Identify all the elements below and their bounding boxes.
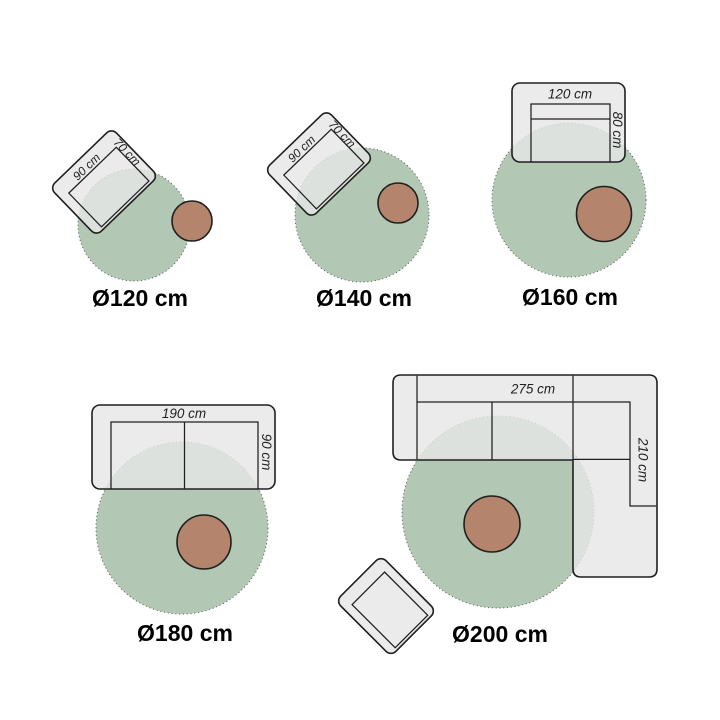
size-caption: Ø200 cm bbox=[452, 621, 548, 647]
side-table bbox=[577, 187, 632, 242]
size-caption: Ø120 cm bbox=[92, 285, 188, 311]
rug-size-guide: 90 cm 70 cm Ø120 cm 90 cm 70 cm Ø140 cm … bbox=[0, 0, 720, 720]
depth-label: 210 cm bbox=[636, 437, 651, 482]
diagram-rug-120: 90 cm 70 cm Ø120 cm bbox=[50, 127, 212, 311]
diagram-rug-200: 275 cm 210 cm Ø200 cm bbox=[336, 375, 657, 656]
diagram-rug-160: 120 cm 80 cm Ø160 cm bbox=[492, 83, 646, 310]
width-label: 120 cm bbox=[548, 87, 592, 102]
loveseat: 120 cm 80 cm bbox=[512, 83, 625, 162]
depth-label: 90 cm bbox=[259, 434, 274, 471]
side-table bbox=[378, 183, 418, 223]
side-table bbox=[177, 515, 231, 569]
rug-size-guide-canvas: 90 cm 70 cm Ø120 cm 90 cm 70 cm Ø140 cm … bbox=[0, 0, 720, 720]
size-caption: Ø160 cm bbox=[522, 284, 618, 310]
side-table bbox=[464, 496, 520, 552]
depth-label: 80 cm bbox=[610, 112, 625, 149]
width-label: 190 cm bbox=[162, 406, 206, 421]
diagram-rug-180: 190 cm 90 cm Ø180 cm bbox=[92, 405, 275, 646]
width-label: 275 cm bbox=[510, 382, 555, 397]
side-table bbox=[172, 201, 212, 241]
armchair-small bbox=[336, 556, 436, 656]
sofa: 190 cm 90 cm bbox=[92, 405, 275, 489]
armchair-outline bbox=[336, 556, 436, 656]
size-caption: Ø140 cm bbox=[316, 285, 412, 311]
diagram-rug-140: 90 cm 70 cm Ø140 cm bbox=[265, 109, 429, 311]
size-caption: Ø180 cm bbox=[137, 620, 233, 646]
